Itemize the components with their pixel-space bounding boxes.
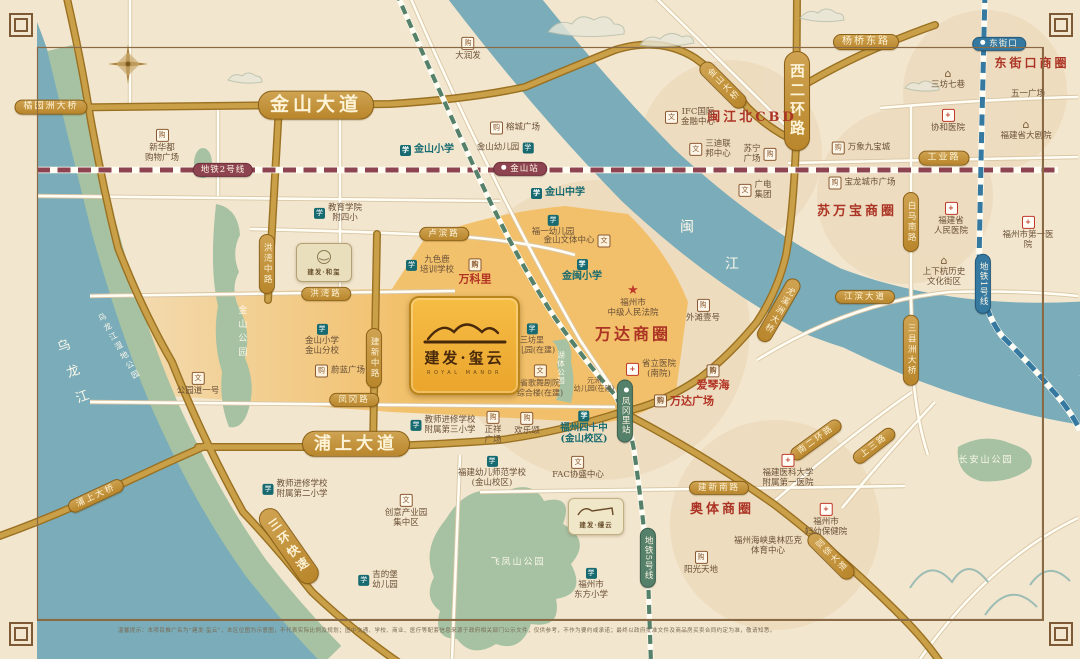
hospital-icon: +	[819, 503, 832, 516]
poi-24: 学教师进修学校 附属第三小学	[410, 415, 475, 435]
label-text: 金山中学	[545, 187, 585, 199]
label-text: 福建医科大学 附属第一医院	[762, 468, 813, 488]
road-pill-11: 卢滨路	[419, 227, 469, 241]
label-text: 广电 集团	[754, 180, 771, 200]
label-text: 福建省 人民医院	[934, 216, 968, 236]
road-pill-0: 橘园洲大桥	[14, 100, 87, 115]
location-map: 橘园洲大桥金山大道金山大桥杨桥东路西二环路工业路白马南路三县洲大桥尤溪洲大桥江滨…	[0, 0, 1080, 659]
label-text: 浦上大道	[314, 434, 398, 454]
label-text: 元洲 幼儿园(在建)	[574, 377, 614, 394]
label-text: 福州海峡奥林匹克 体育中心	[734, 536, 802, 556]
label-text: 吉的堡 幼儿园	[372, 570, 398, 590]
culture-icon: 文	[534, 364, 547, 377]
corner-ornament-tr	[1049, 13, 1073, 37]
school-icon: 学	[486, 456, 497, 467]
road-pill-20: 上三路	[850, 425, 898, 467]
metro-label-0: 地铁2号线	[193, 163, 253, 177]
label-text: 福建幼儿师范学校 (金山校区)	[458, 468, 526, 488]
shop-icon: 购	[654, 395, 667, 408]
poi-32: +福州市 妇幼保健院	[805, 503, 848, 537]
poi-30: 购阳光天地	[684, 551, 718, 575]
shop-icon: 购	[832, 142, 845, 155]
mountain-logo-icon	[422, 315, 508, 345]
school-icon: 学	[316, 324, 327, 335]
school-icon: 学	[578, 411, 589, 422]
label-text: 金山大桥	[705, 67, 742, 104]
roof-icon: ⌂	[942, 68, 953, 79]
label-text: 福州市 中级人民法院	[607, 298, 658, 318]
poi-9: 学九色鹿 培训学校	[406, 255, 454, 275]
school-icon: 学	[400, 145, 411, 156]
park-label-0: 乌龙江	[52, 337, 94, 418]
label-text: 公园道一号	[177, 386, 220, 396]
label-text: 凤冈里站	[620, 397, 630, 435]
school-icon: 学	[406, 260, 417, 271]
shop-icon: 购	[694, 551, 707, 564]
label-text: 南二环路	[796, 424, 836, 457]
label-text: 飞凤山公园	[490, 558, 545, 568]
label-text: 万科里	[459, 272, 492, 285]
school-icon: 学	[527, 323, 538, 334]
label-text: 西二环路	[788, 63, 806, 139]
shop-icon: 购	[469, 258, 482, 271]
corner-ornament-bl	[9, 622, 33, 646]
park-label-6: 闽	[680, 220, 696, 237]
label-text: 橘园洲大桥	[23, 102, 78, 112]
label-text: 上下杭历史 文化街区	[923, 267, 966, 287]
culture-icon: 文	[598, 235, 611, 248]
label-text: 金山小学	[414, 144, 454, 156]
poi-47: +福建省 人民医院	[934, 202, 968, 236]
label-text: 金闽小学	[562, 271, 602, 283]
label-text: 乌龙江	[52, 337, 94, 418]
road-pill-17: 浦上大桥	[66, 477, 126, 515]
poi-0: 购新华都 购物广场	[145, 129, 179, 163]
school-icon: 学	[547, 215, 558, 226]
label-text: IFC国际 金融中心	[681, 107, 715, 127]
road-pill-18: 建新南路	[689, 481, 749, 495]
poi-7: 文金山文体中心	[543, 235, 610, 248]
label-text: 三环快速	[265, 516, 313, 576]
label-text: 闽	[680, 220, 696, 236]
poi-1: 购大润发	[455, 37, 481, 61]
poi-23: 购欢乐颂	[514, 412, 540, 436]
label-text: 万达商圈	[595, 324, 671, 343]
poi-5: 学金山中学	[531, 187, 585, 199]
label-text: 万象九宝城	[848, 143, 891, 153]
poi-19: 购万达广场	[654, 394, 714, 407]
hexi-project-name: 建发·和玺	[307, 266, 340, 276]
metro-station-2: 东街口	[972, 37, 1026, 51]
poi-11: 学金闽小学	[562, 259, 602, 283]
poi-37: 文IFC国际 金融中心	[665, 107, 715, 127]
poi-44: +协和医院	[931, 109, 965, 133]
label-text: 苏万宝商圈	[817, 204, 897, 219]
label-text: 新华都 购物广场	[145, 143, 179, 163]
label-text: 九色鹿 培训学校	[420, 255, 454, 275]
main-project-logo: 建发·玺云 ROYAL MANOR	[409, 296, 520, 395]
label-text: 浦上大桥	[75, 483, 117, 510]
label-text: 金山幼儿园	[477, 143, 520, 153]
park-label-2: 金山公园	[236, 305, 247, 361]
road-pill-10: 洪湾中路	[259, 234, 275, 294]
road-pill-14: 凤冈路	[329, 393, 379, 407]
label-text: 创意产业园 集中区	[385, 508, 428, 528]
label-text: 三迪联 邦中心	[705, 139, 731, 159]
compass-icon	[104, 40, 152, 92]
label-text: 五一广场	[1011, 89, 1045, 99]
star-icon: ★	[626, 284, 639, 297]
label-text: 地铁5号线	[643, 536, 653, 580]
manyun-logo-icon	[576, 504, 616, 518]
label-text: 东街口	[989, 39, 1018, 49]
label-text: 教师进修学校 附属第三小学	[424, 415, 475, 435]
poi-41: 购万象九宝城	[832, 142, 891, 155]
shop-icon: 购	[461, 37, 474, 50]
poi-31: +福建医科大学 附属第一医院	[762, 454, 813, 488]
park-label-7: 江	[725, 257, 741, 274]
park-label-5: 长安山公园	[958, 456, 1013, 467]
label-text: 福州四十中 (金山校区)	[560, 423, 608, 446]
poi-42: 购宝龙城市广场	[828, 177, 895, 190]
poi-48: +福州市第一医院	[1002, 216, 1054, 250]
label-text: 大润发	[455, 51, 481, 61]
shop-icon: 购	[828, 177, 841, 190]
road-pill-3: 杨桥东路	[833, 34, 899, 50]
label-text: 白马南路	[906, 201, 916, 243]
business-circle-label-2: 苏万宝商圈	[817, 204, 897, 220]
poi-3: 学金山幼儿园	[477, 143, 534, 154]
poi-18: 购爱琴海	[697, 364, 730, 391]
school-icon: 学	[522, 143, 533, 154]
hospital-icon: +	[626, 363, 639, 376]
label-text: 江滨大道	[844, 292, 886, 302]
poi-17: +省立医院 (南院)	[626, 359, 676, 379]
business-circle-label-4: 奥体商圈	[690, 502, 754, 518]
road-pill-5: 工业路	[918, 151, 969, 166]
label-text: 建新中路	[369, 337, 379, 379]
poi-2: 购榕城广场	[490, 122, 540, 135]
label-text: 教师进修学校 附属第二小学	[276, 479, 327, 499]
label-text: 爱琴海	[697, 378, 730, 391]
label-text: 省歌舞剧院 综合楼(在建)	[517, 378, 563, 397]
label-text: 工业路	[927, 153, 960, 163]
roof-icon: ⌂	[938, 255, 949, 266]
poi-16: 元洲 幼儿园(在建)	[574, 377, 614, 394]
road-pill-1: 金山大道	[258, 91, 374, 120]
hospital-icon: +	[944, 202, 957, 215]
road-pill-15: 浦上大道	[302, 431, 410, 457]
culture-icon: 文	[665, 111, 678, 124]
road-pill-12: 洪湾路	[301, 287, 351, 301]
label-text: 正祥 广场	[484, 425, 501, 445]
main-project-latin: ROYAL MANOR	[427, 370, 502, 376]
label-text: 蔚蓝广场	[331, 366, 365, 376]
hospital-icon: +	[1022, 216, 1035, 229]
park-label-1: 乌龙江湿地公园	[96, 311, 143, 382]
label-text: 东街口商圈	[994, 56, 1069, 70]
label-text: 金山站	[510, 164, 539, 174]
school-icon: 学	[358, 575, 369, 586]
poi-29: 学福州市 东方小学	[574, 568, 608, 600]
business-circle-label-1: 闽江北CBD	[707, 110, 797, 126]
label-text: 阳光天地	[684, 565, 718, 575]
culture-icon: 文	[191, 372, 204, 385]
manyun-project-name: 建发·缦云	[579, 519, 612, 529]
poi-43: ⌂三坊七巷	[931, 68, 965, 90]
poi-46: ⌂福建省大剧院	[1000, 119, 1051, 141]
metro-label-1: 地铁5号线	[640, 528, 656, 588]
label-text: 福建省大剧院	[1000, 131, 1051, 141]
manyun-project-logo: 建发·缦云	[568, 498, 624, 535]
poi-27: 文创意产业园 集中区	[385, 494, 428, 528]
hexi-project-logo: 建发·和玺	[296, 243, 352, 282]
label-text: 协和医院	[931, 123, 965, 133]
shop-icon: 购	[764, 148, 777, 161]
label-text: 金山大道	[270, 94, 362, 116]
label-text: 金山文体中心	[543, 236, 594, 246]
shop-icon: 购	[315, 365, 328, 378]
business-circle-label-3: 东街口商圈	[994, 56, 1069, 70]
label-text: 则徐大道	[813, 538, 850, 575]
culture-icon: 文	[572, 456, 585, 469]
label-text: 榕城广场	[506, 123, 540, 133]
poi-4: 学金山小学	[400, 144, 454, 156]
corner-ornament-tl	[9, 13, 33, 37]
poi-25: 学福建幼儿师范学校 (金山校区)	[458, 456, 526, 488]
metro-station-1: 凤冈里站	[617, 380, 633, 443]
poi-28: 学吉的堡 幼儿园	[358, 570, 398, 590]
label-text: 福州市 东方小学	[574, 580, 608, 600]
poi-45: 五一广场	[1011, 89, 1045, 99]
label-text: 乌龙江湿地公园	[96, 311, 142, 382]
label-text: 地铁1号线	[978, 262, 988, 306]
road-pill-7: 三县洲大桥	[903, 315, 919, 386]
label-text: 闽江北CBD	[707, 110, 797, 125]
label-text: 地铁2号线	[201, 165, 245, 175]
poi-34: 文公园道一号	[177, 372, 220, 396]
hexi-logo-icon	[315, 249, 333, 265]
poi-35: 学金山小学 金山分校	[305, 324, 339, 356]
label-text: 杨桥东路	[842, 36, 890, 47]
poi-12: ★福州市 中级人民法院	[607, 284, 658, 318]
label-text: FAC协盛中心	[552, 470, 604, 480]
label-text: 省立医院 (南院)	[642, 359, 676, 379]
hospital-icon: +	[941, 109, 954, 122]
business-circle-label-0: 万达商圈	[595, 324, 671, 343]
poi-21: 文FAC协盛中心	[552, 456, 604, 480]
label-text: 福州市 妇幼保健院	[805, 517, 848, 537]
label-text: 凤冈路	[338, 395, 370, 405]
poi-49: ⌂上下杭历史 文化街区	[923, 255, 966, 287]
label-text: 金山公园	[236, 305, 246, 361]
school-icon: 学	[262, 484, 273, 495]
label-text: 江	[725, 257, 741, 273]
poi-15: 文省歌舞剧院 综合楼(在建)	[517, 364, 563, 397]
poi-38: 文三迪联 邦中心	[689, 139, 731, 159]
disclaimer: 温馨提示：本项目推广名为“建发·玺云”，本区位图为示意图，不代表实际比例及规划；…	[118, 626, 1062, 634]
school-icon: 学	[577, 259, 588, 270]
school-icon: 学	[314, 208, 325, 219]
label-text: 教育学院 附四小	[328, 203, 362, 223]
label-text: 外滩壹号	[686, 313, 720, 323]
label-text: 三县洲大桥	[906, 324, 916, 377]
road-pill-16: 三环快速	[255, 504, 324, 589]
poi-10: 购万科里	[459, 258, 492, 285]
poi-39: 文广电 集团	[738, 180, 771, 200]
map-labels: 橘园洲大桥金山大道金山大桥杨桥东路西二环路工业路白马南路三县洲大桥尤溪洲大桥江滨…	[0, 0, 1080, 659]
school-icon: 学	[410, 420, 421, 431]
hospital-icon: +	[781, 454, 794, 467]
poi-22: 购正祥 广场	[484, 411, 501, 445]
label-text: 欢乐颂	[514, 426, 540, 436]
label-text: 福州市第一医院	[1002, 230, 1054, 250]
label-text: 卢滨路	[428, 229, 460, 239]
poi-20: 学福州四十中 (金山校区)	[560, 411, 608, 446]
label-text: 建新南路	[698, 483, 740, 493]
road-pill-8: 尤溪洲大桥	[754, 275, 803, 344]
poi-13: 购外滩壹号	[686, 299, 720, 323]
shop-icon: 购	[490, 122, 503, 135]
park-label-4: 飞凤山公园	[490, 558, 545, 569]
poi-36: 购蔚蓝广场	[315, 365, 365, 378]
label-text: 长安山公园	[958, 456, 1013, 466]
shop-icon: 购	[707, 364, 720, 377]
poi-26: 学教师进修学校 附属第二小学	[262, 479, 327, 499]
poi-40: 购苏宁 广场	[743, 144, 776, 164]
road-pill-13: 建新中路	[366, 328, 382, 388]
poi-33: 福州海峡奥林匹克 体育中心	[734, 536, 802, 556]
shop-icon: 购	[696, 299, 709, 312]
culture-icon: 文	[689, 143, 702, 156]
culture-icon: 文	[738, 184, 751, 197]
metro-label-2: 地铁1号线	[975, 254, 991, 314]
label-text: 洪湾中路	[262, 243, 272, 285]
shop-icon: 购	[486, 411, 499, 424]
label-text: 金山小学 金山分校	[305, 336, 339, 356]
road-pill-9: 江滨大道	[835, 290, 895, 304]
road-pill-6: 白马南路	[903, 192, 919, 252]
label-text: 万达广场	[670, 394, 714, 407]
school-icon: 学	[531, 188, 542, 199]
label-text: 奥体商圈	[690, 502, 754, 517]
poi-8: 学教育学院 附四小	[314, 203, 362, 223]
label-text: 宝龙城市广场	[844, 178, 895, 188]
label-text: 三坊七巷	[931, 80, 965, 90]
label-text: 上三路	[858, 432, 889, 459]
shop-icon: 购	[520, 412, 533, 425]
label-text: 苏宁 广场	[743, 144, 760, 164]
main-project-name: 建发·玺云	[424, 347, 504, 368]
metro-station-0: 金山站	[493, 162, 547, 176]
road-pill-4: 西二环路	[784, 51, 810, 151]
label-text: 尤溪洲大桥	[762, 285, 797, 335]
label-text: 洪湾路	[310, 289, 342, 299]
shop-icon: 购	[155, 129, 168, 142]
culture-icon: 文	[399, 494, 412, 507]
school-icon: 学	[585, 568, 596, 579]
road-pill-2: 金山大桥	[696, 58, 750, 112]
roof-icon: ⌂	[1020, 119, 1031, 130]
